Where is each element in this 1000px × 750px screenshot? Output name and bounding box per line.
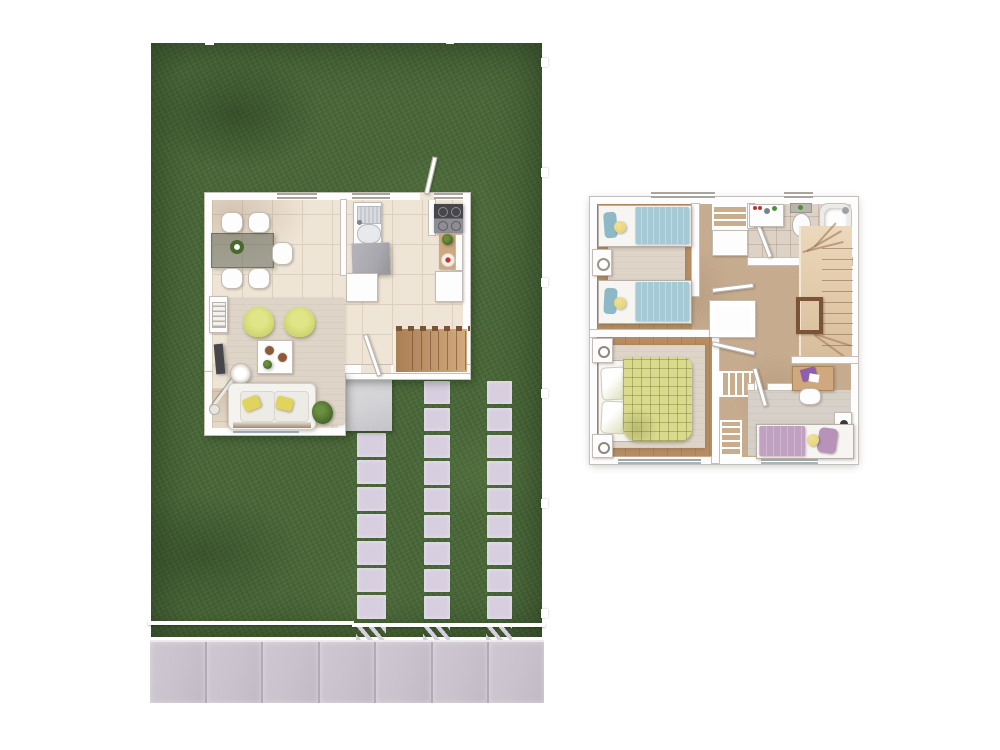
paver — [424, 596, 450, 619]
slab — [489, 642, 544, 703]
alarm-clock — [598, 346, 610, 358]
paver — [357, 514, 386, 538]
fence-notch — [446, 38, 454, 44]
paver — [487, 461, 512, 484]
phone-table — [209, 296, 228, 333]
paver — [487, 435, 512, 458]
dining-chair — [248, 268, 270, 289]
kitchen-sink-unit — [353, 202, 382, 246]
paver — [424, 408, 450, 431]
dining-chair — [272, 242, 293, 265]
paver — [424, 461, 450, 484]
floor-plant — [312, 401, 333, 424]
bathroom-vanity — [749, 204, 784, 227]
slab — [320, 642, 375, 703]
paper — [808, 373, 819, 382]
gf-tread — [413, 331, 422, 370]
paver — [357, 460, 386, 484]
counter-plant — [442, 234, 453, 245]
stair-bottom-wall — [792, 357, 858, 363]
stove — [434, 204, 463, 233]
faucet — [764, 208, 770, 214]
dining-chair — [221, 212, 243, 233]
wardrobe — [712, 230, 748, 256]
slab — [376, 642, 431, 703]
red-bottle — [753, 206, 757, 210]
master-closet-shelves — [720, 420, 742, 458]
sofa-base — [233, 422, 311, 428]
paver — [487, 515, 512, 538]
fence-posts-right — [541, 58, 548, 618]
red-bottle — [758, 206, 762, 210]
window-kitchen-stove — [429, 193, 463, 199]
gf-tread — [422, 331, 431, 370]
floor-plan-scene — [0, 0, 1000, 750]
fence-post — [541, 58, 548, 67]
kitchen-counter — [346, 273, 378, 302]
slab — [263, 642, 318, 703]
gf-tread — [404, 331, 413, 370]
coffee-table — [257, 340, 293, 374]
dining-chair — [221, 268, 243, 289]
paver — [487, 408, 512, 431]
uf-tread — [822, 281, 853, 292]
stair-treads-upper — [822, 238, 853, 346]
twin-bed — [598, 205, 692, 247]
paver — [487, 488, 512, 511]
nightstand — [592, 434, 613, 458]
paver-ramp — [486, 627, 512, 640]
paver — [424, 569, 450, 592]
stair-railing-upper — [796, 297, 823, 334]
paver — [487, 569, 512, 592]
paver — [424, 381, 450, 404]
stair-railing — [396, 326, 470, 331]
alarm-clock — [597, 258, 610, 271]
fence-post — [541, 499, 548, 508]
gf-tread — [431, 331, 440, 370]
fence-line — [148, 621, 354, 625]
kids-blanket — [759, 426, 805, 456]
closet-rods — [712, 204, 748, 230]
master-blanket — [623, 357, 692, 441]
fruit-plate — [441, 253, 455, 267]
paver — [357, 595, 386, 619]
paver — [357, 541, 386, 565]
window-dining — [277, 193, 317, 199]
paver-path-left — [357, 433, 386, 619]
fence-post — [541, 609, 548, 618]
kids-bed — [756, 424, 854, 459]
paver-path-right — [487, 381, 512, 619]
kids-room-top-wall — [768, 384, 794, 390]
fence-post — [541, 389, 548, 398]
twin-blanket — [635, 207, 689, 244]
staircase-upper — [799, 226, 852, 358]
shower-head — [842, 207, 849, 214]
nightstand — [592, 338, 613, 363]
uf-tread — [822, 292, 853, 303]
centerpiece-plant — [230, 240, 244, 254]
armchair — [284, 307, 315, 337]
paver — [487, 381, 512, 404]
slab — [150, 642, 205, 703]
paver — [357, 487, 386, 511]
telephone — [212, 302, 226, 328]
uf-tread — [822, 324, 853, 335]
twin-bed — [598, 280, 692, 324]
window-kitchen-sink — [352, 193, 390, 199]
gf-tread — [448, 331, 457, 370]
desk-chair — [799, 388, 821, 405]
window-kids-bottom — [761, 459, 818, 464]
round-cushion — [614, 297, 626, 309]
green-bottle — [772, 206, 777, 211]
master-right-wall — [712, 330, 719, 463]
round-cushion — [807, 434, 819, 446]
plate — [264, 345, 275, 356]
sink-basin — [357, 224, 381, 244]
paver — [357, 568, 386, 592]
paver — [357, 433, 386, 457]
window-twin-top — [651, 192, 715, 198]
fence-post — [541, 168, 548, 177]
paver — [424, 488, 450, 511]
staircase-ground — [393, 329, 467, 372]
twin-blanket — [635, 282, 689, 321]
twin-master-wall — [590, 330, 712, 337]
twin-room-right-wall — [692, 204, 699, 296]
armchair — [243, 307, 274, 337]
paver-ramp — [356, 627, 386, 640]
entry-pad — [343, 371, 392, 431]
paver — [424, 435, 450, 458]
fence-post — [541, 278, 548, 287]
uf-tread — [822, 249, 853, 260]
burner — [438, 221, 448, 231]
gf-tread — [439, 331, 448, 370]
arc-lamp-base — [209, 404, 220, 415]
counter-with-fruit — [439, 233, 455, 269]
arc-lamp-shade — [230, 363, 251, 384]
uf-tread — [822, 270, 853, 281]
uf-tread — [822, 303, 853, 314]
alarm-clock — [598, 442, 610, 454]
paver-ramp — [423, 627, 450, 640]
uf-tread — [822, 314, 853, 325]
uf-tread — [822, 260, 853, 271]
burner — [451, 207, 461, 217]
gf-tread — [457, 331, 466, 370]
burner — [451, 221, 461, 231]
sidewalk — [150, 640, 544, 703]
paver — [487, 542, 512, 565]
toilet-tank-plant — [798, 205, 803, 210]
nightstand — [592, 249, 612, 276]
round-cushion — [614, 221, 626, 233]
kids-pillow — [816, 427, 838, 454]
plate — [277, 352, 288, 363]
kids-room-top-wall — [748, 384, 754, 390]
paver — [424, 515, 450, 538]
sink-faucet — [357, 220, 362, 225]
window-master-bottom — [618, 459, 701, 464]
paver — [424, 542, 450, 565]
sofa — [228, 383, 316, 430]
kitchen-partition — [341, 200, 346, 275]
linen-closet — [710, 301, 755, 337]
paver — [487, 596, 512, 619]
dining-chair — [248, 212, 270, 233]
slab — [433, 642, 488, 703]
stair-treads — [404, 331, 466, 370]
kitchen-island — [351, 242, 390, 275]
window-bath-top — [784, 192, 813, 198]
kitchen-counter-right — [455, 234, 463, 271]
burner — [438, 207, 448, 217]
slab — [207, 642, 262, 703]
fridge — [435, 271, 463, 302]
fence-notch — [205, 38, 214, 45]
table-plant — [263, 360, 272, 369]
paver-path-middle — [424, 381, 450, 619]
